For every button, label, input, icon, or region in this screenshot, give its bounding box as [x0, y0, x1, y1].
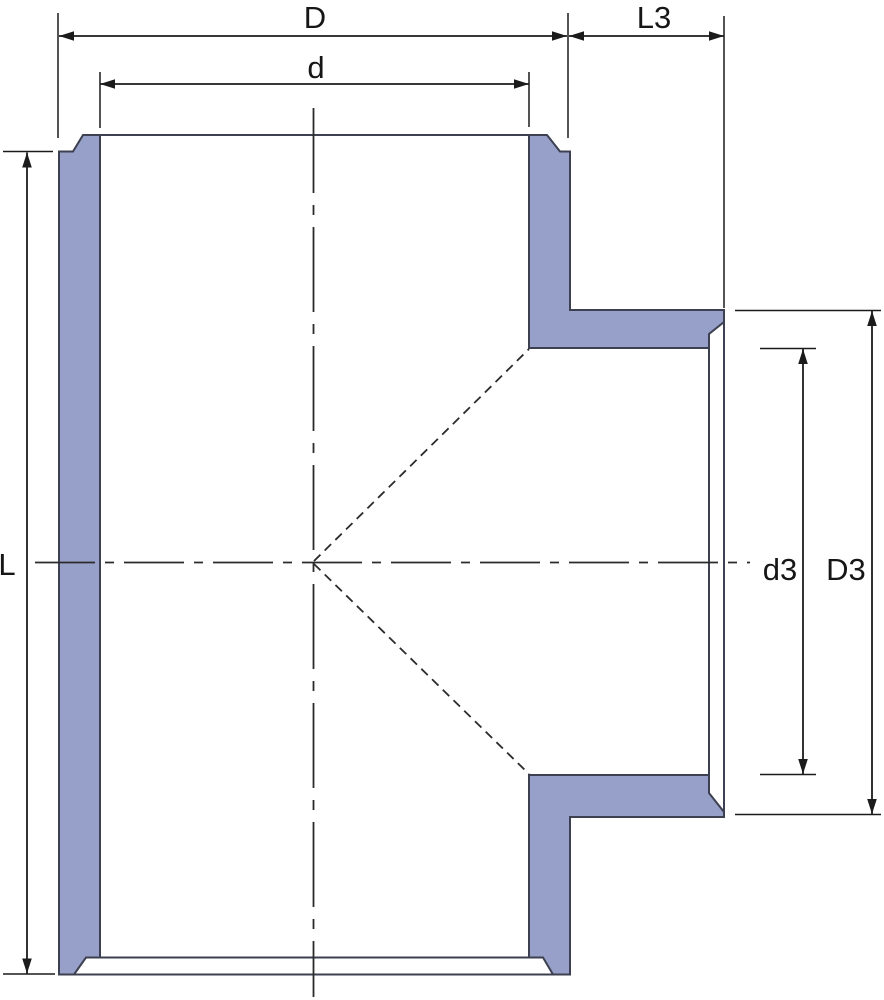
- dimension-L3-label: L3: [637, 0, 671, 35]
- dimension-D3-label: D3: [826, 552, 866, 587]
- dimension-d-label: d: [307, 50, 324, 85]
- dimension-d-arrow-right: [514, 79, 529, 89]
- dimension-D3-arrow-top: [867, 311, 877, 326]
- dimension-L3-arrow-right: [709, 31, 724, 41]
- dimension-L3-arrow-left: [569, 31, 584, 41]
- dimension-d-arrow-left: [100, 79, 115, 89]
- dimension-L-label: L: [0, 547, 16, 582]
- dimension-d3-label: d3: [763, 552, 797, 587]
- dimension-D-arrow-left: [59, 31, 74, 41]
- dimension-D3-arrow-bottom: [867, 799, 877, 814]
- dimension-L-arrow-bottom: [22, 959, 32, 974]
- dimension-L-arrow-top: [22, 153, 32, 168]
- dimension-L3: L3: [569, 0, 724, 308]
- hidden-transition-line-lower: [314, 564, 529, 774]
- dimension-D-label: D: [304, 0, 326, 35]
- tee-fitting-section-drawing: D d L3 L: [0, 0, 884, 1000]
- dimension-d3: d3: [760, 349, 816, 775]
- dimension-D-arrow-right: [552, 31, 567, 41]
- dimension-d: d: [100, 50, 529, 128]
- dimension-d3-arrow-bottom: [798, 759, 808, 774]
- dimension-d3-arrow-top: [798, 349, 808, 364]
- drawing-svg: D d L3 L: [0, 0, 884, 1000]
- upper-right-wall-and-branch-top-section: [529, 135, 724, 348]
- main-left-wall-section: [59, 135, 100, 975]
- hidden-transition-line-upper: [314, 349, 529, 561]
- dimension-D3: D3: [735, 311, 881, 815]
- lower-right-wall-and-branch-bottom-section: [529, 775, 724, 975]
